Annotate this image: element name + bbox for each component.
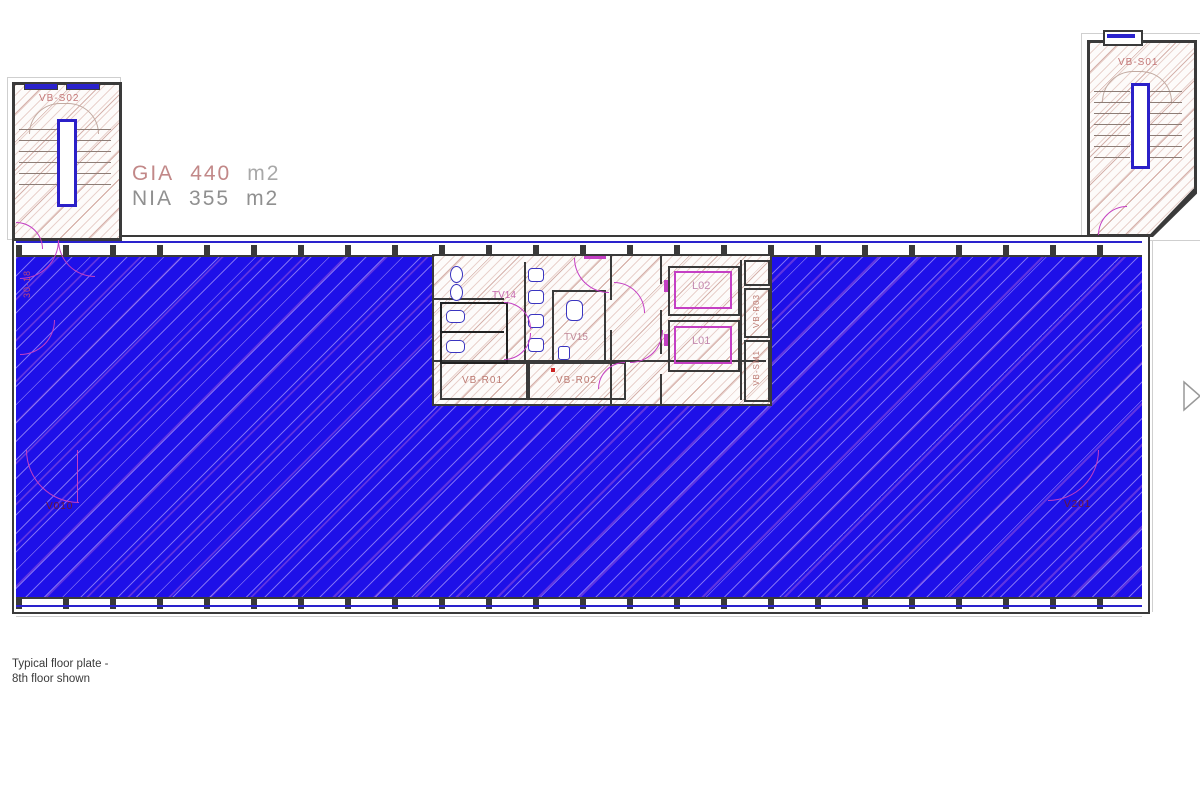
nia-value: 355: [189, 187, 230, 211]
plant-room-vb-r01: VB-R01: [440, 362, 528, 400]
lobby-wall-1: [610, 256, 612, 300]
stair-treads-right-tower-b: [1146, 91, 1182, 161]
gia-unit: m2: [247, 162, 280, 186]
stair-right-label: VB-S01: [1118, 57, 1158, 68]
door-leaf-bottom-left: [77, 450, 78, 502]
door-arc-cubicle-2: [504, 333, 531, 360]
door-arc-cubicle-1: [504, 302, 531, 329]
door-tag-v010: V010: [46, 501, 73, 512]
caption: Typical floor plate - 8th floor shown: [12, 657, 232, 687]
right-arrow-marker: [1182, 380, 1200, 412]
cubicle-divider: [440, 331, 504, 333]
stair-right-roof-box: [1103, 30, 1143, 46]
floor-plan-canvas: VB-S02 VB-S01 VB-R01 VB-R02: [0, 0, 1200, 801]
lift-2-label: L02: [692, 280, 710, 292]
door-tag-v201: V201: [1064, 499, 1091, 510]
lift-lobby-wall-a: [660, 256, 662, 284]
stair-tower-left: VB-S02: [12, 82, 122, 241]
wc-pan-1: [446, 310, 465, 323]
plant-room-2-label: VB-R02: [556, 375, 597, 386]
wc-pan-2: [446, 340, 465, 353]
washbasin-2: [528, 290, 544, 304]
stair-handrail-right: [1131, 83, 1150, 169]
lift-door-mark-l01: [664, 334, 668, 346]
riser-2-label: VB-SM1: [752, 350, 761, 386]
caption-line-1: Typical floor plate -: [12, 657, 232, 672]
riser-room-1: VB-R03: [744, 288, 770, 338]
stair-left-window-1: [24, 83, 58, 90]
stair-tower-right-interior: VB-S01: [1090, 43, 1194, 234]
riser-wall: [740, 260, 742, 400]
riser-room-2: VB-SM1: [744, 340, 770, 402]
door-arc-lobby: [614, 282, 645, 313]
offset-line-bottom-facade: [16, 616, 1142, 617]
survey-dot: [551, 368, 555, 372]
bottom-glazing-line: [16, 605, 1142, 607]
stair-treads-left: [19, 129, 57, 195]
urinal-2: [450, 284, 463, 301]
toilet-male-label: TV14: [492, 290, 516, 301]
lift-shaft-l02: L02: [668, 266, 740, 316]
gia-value: 440: [190, 162, 231, 186]
wall-tag-left: 30-18: [22, 270, 32, 298]
accessible-wc-pan: [566, 300, 583, 321]
stair-treads-right: [73, 129, 111, 195]
door-leaf-core-top: [584, 256, 606, 259]
toilet-accessible-label: TV15: [564, 332, 588, 343]
lift-door-mark-l02: [664, 280, 668, 292]
lift-shaft-l01: L01: [668, 320, 740, 372]
door-arc-lift-lobby: [630, 330, 663, 363]
core-block: VB-R01 VB-R02 TV14 TV15: [432, 254, 772, 406]
nia-label: NIA: [132, 187, 173, 211]
riser-top-room: [744, 260, 770, 286]
gia-stat: GIA440m2: [132, 162, 280, 186]
stair-handrail: [57, 119, 77, 207]
nia-stat: NIA355m2: [132, 187, 279, 211]
stair-left-window-2: [66, 83, 100, 90]
stair-right-window: [1107, 34, 1135, 38]
nia-unit: m2: [246, 187, 279, 211]
urinal-1: [450, 266, 463, 283]
top-glazing-line: [16, 241, 1142, 243]
stair-treads-right-tower-a: [1094, 91, 1130, 161]
accessible-wc-room: TV15: [552, 290, 606, 364]
caption-line-2: 8th floor shown: [12, 672, 232, 687]
riser-1-label: VB-R03: [752, 294, 761, 328]
stair-tower-right: VB-S01: [1087, 40, 1197, 237]
accessible-basin: [558, 346, 570, 360]
lift-1-label: L01: [692, 335, 710, 347]
bottom-facade-mullions: [16, 599, 1142, 609]
door-arc-core-entry-top: [574, 258, 609, 293]
plant-room-1-label: VB-R01: [462, 375, 503, 386]
washbasin-4: [528, 338, 544, 352]
gia-label: GIA: [132, 162, 174, 186]
washbasin-1: [528, 268, 544, 282]
lift-lobby-wall-c: [660, 374, 662, 404]
offset-line-right-facade: [1152, 240, 1153, 612]
